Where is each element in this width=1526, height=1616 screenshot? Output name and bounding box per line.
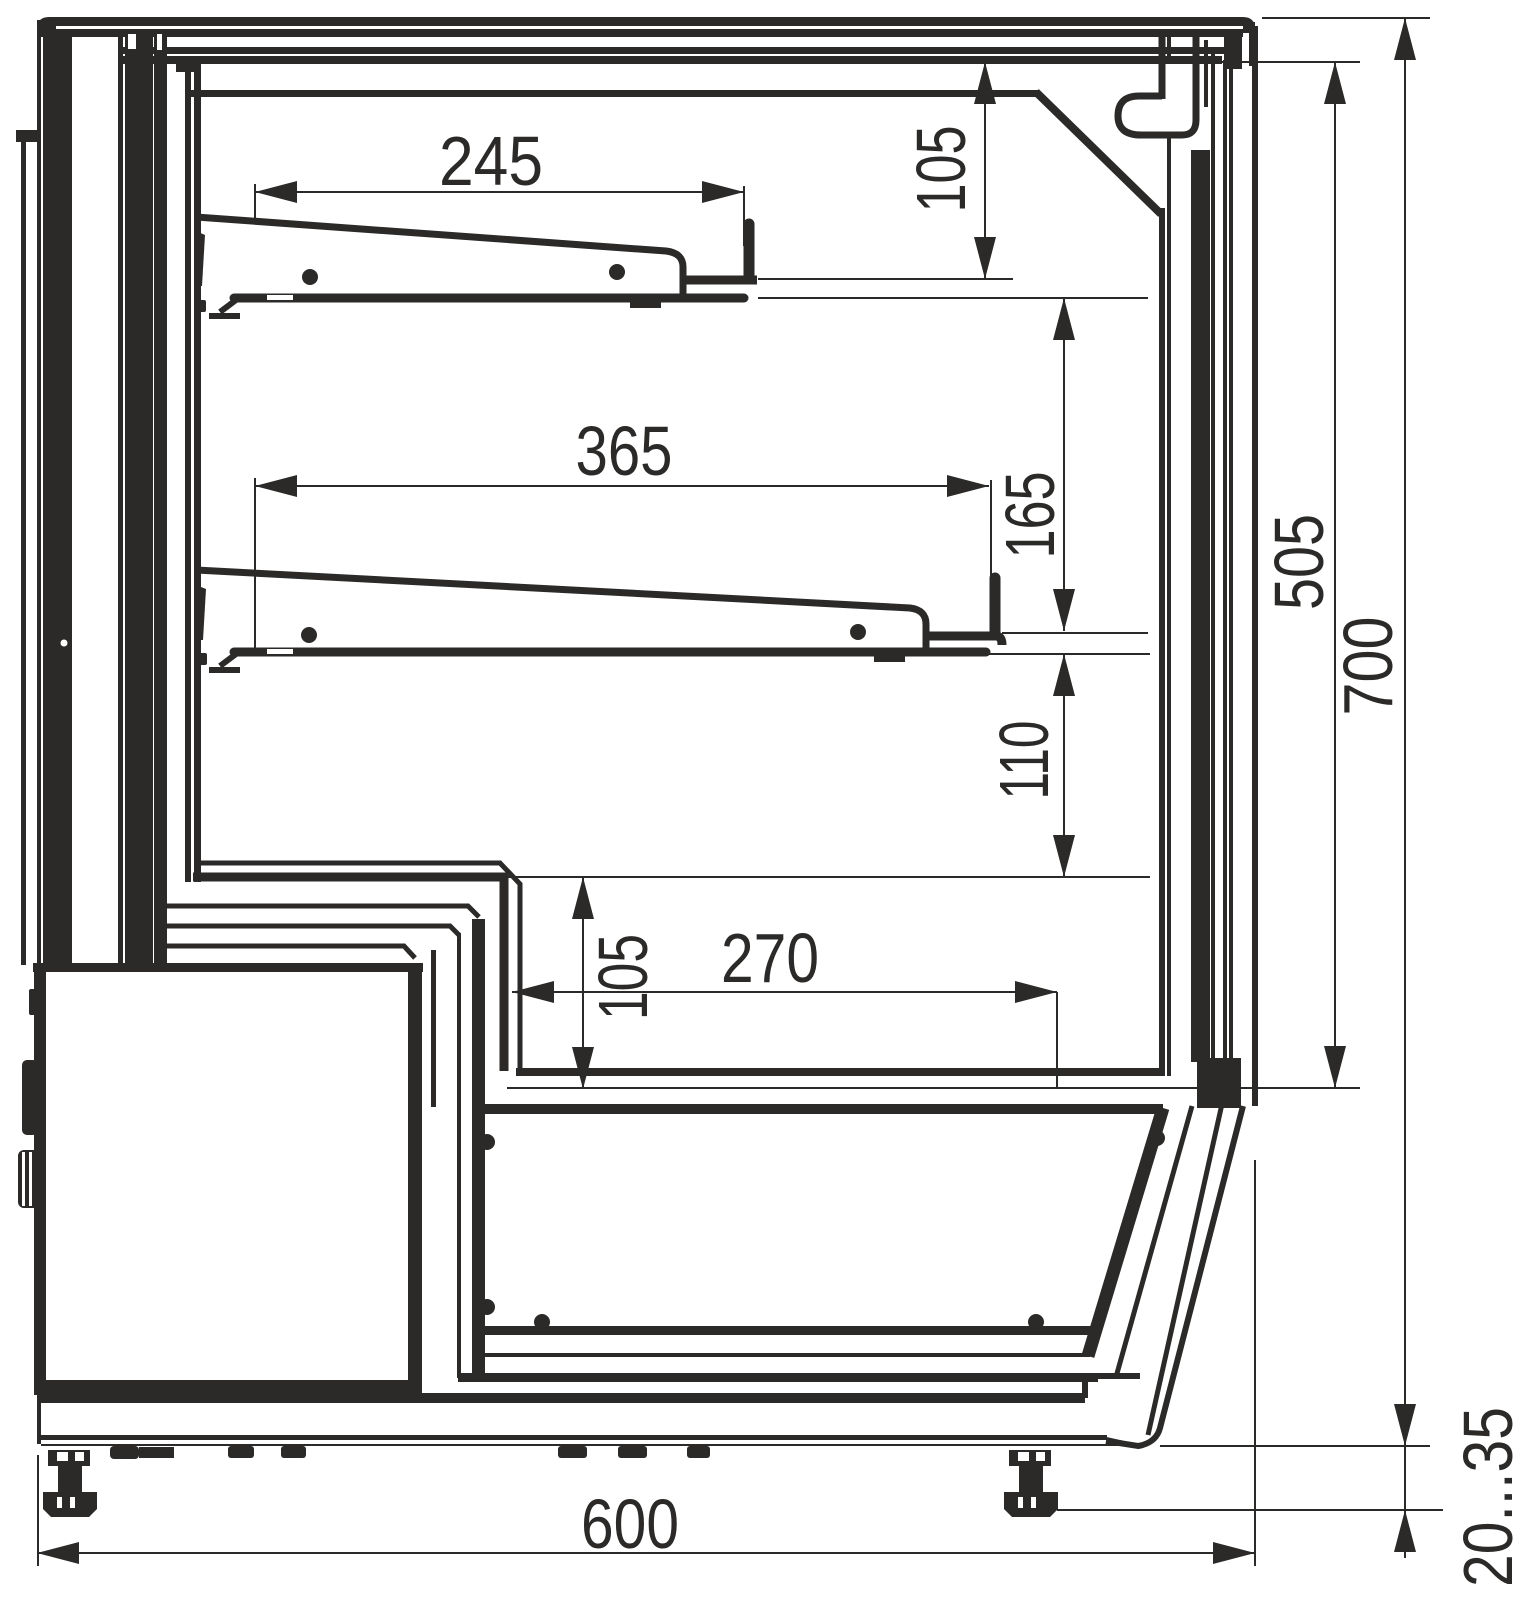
svg-text:245: 245 bbox=[439, 122, 543, 200]
svg-text:505: 505 bbox=[1260, 514, 1338, 610]
svg-text:110: 110 bbox=[985, 721, 1063, 800]
svg-text:600: 600 bbox=[581, 1485, 679, 1563]
svg-text:20...35: 20...35 bbox=[1449, 1407, 1526, 1587]
svg-text:105: 105 bbox=[584, 934, 662, 1020]
svg-text:105: 105 bbox=[902, 126, 980, 213]
svg-text:270: 270 bbox=[721, 919, 819, 997]
svg-text:700: 700 bbox=[1329, 617, 1407, 716]
svg-text:365: 365 bbox=[576, 412, 673, 490]
svg-text:165: 165 bbox=[991, 472, 1069, 559]
